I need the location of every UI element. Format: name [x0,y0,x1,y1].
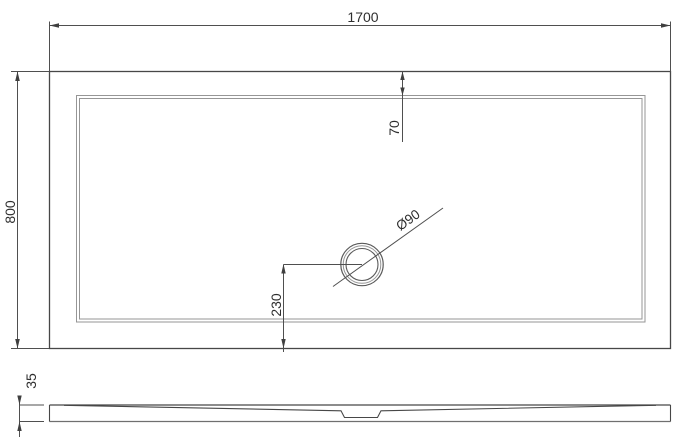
dim-width: 1700 [50,8,671,72]
dim-rim-offset-label: 70 [386,120,402,136]
dim-width-label: 1700 [347,9,378,25]
dim-drain-diameter-label: Ø90 [393,206,422,233]
arrow-up-icon [281,264,285,274]
arrow-up-icon [15,72,20,82]
dim-height-label: 35 [23,373,39,389]
dim-drain-diameter: Ø90 [333,206,443,286]
dim-height: 35 [17,373,44,437]
dim-rim-offset: 70 [386,72,405,143]
technical-drawing-canvas: 1700 800 70 230 Ø90 [0,0,675,443]
arrow-up-icon [17,422,21,432]
side-view: 35 [17,373,670,437]
arrow-down-icon [400,88,404,96]
plan-view: 1700 800 70 230 Ø90 [2,8,671,352]
side-floor-slope-and-drain-boss [64,405,656,417]
arrow-down-icon [17,396,21,406]
dim-depth-label: 800 [2,200,18,224]
technical-drawing: 1700 800 70 230 Ø90 [0,0,675,443]
arrow-down-icon [281,339,285,349]
tray-outer-outline [50,72,671,349]
dim-depth: 800 [2,72,49,349]
arrow-up-icon [400,72,404,81]
arrow-left-icon [50,23,60,28]
dim-drain-offset-label: 230 [268,293,284,317]
arrow-right-icon [661,23,671,28]
tray-inner-rim-outer-line [77,96,646,323]
arrow-down-icon [15,339,20,349]
